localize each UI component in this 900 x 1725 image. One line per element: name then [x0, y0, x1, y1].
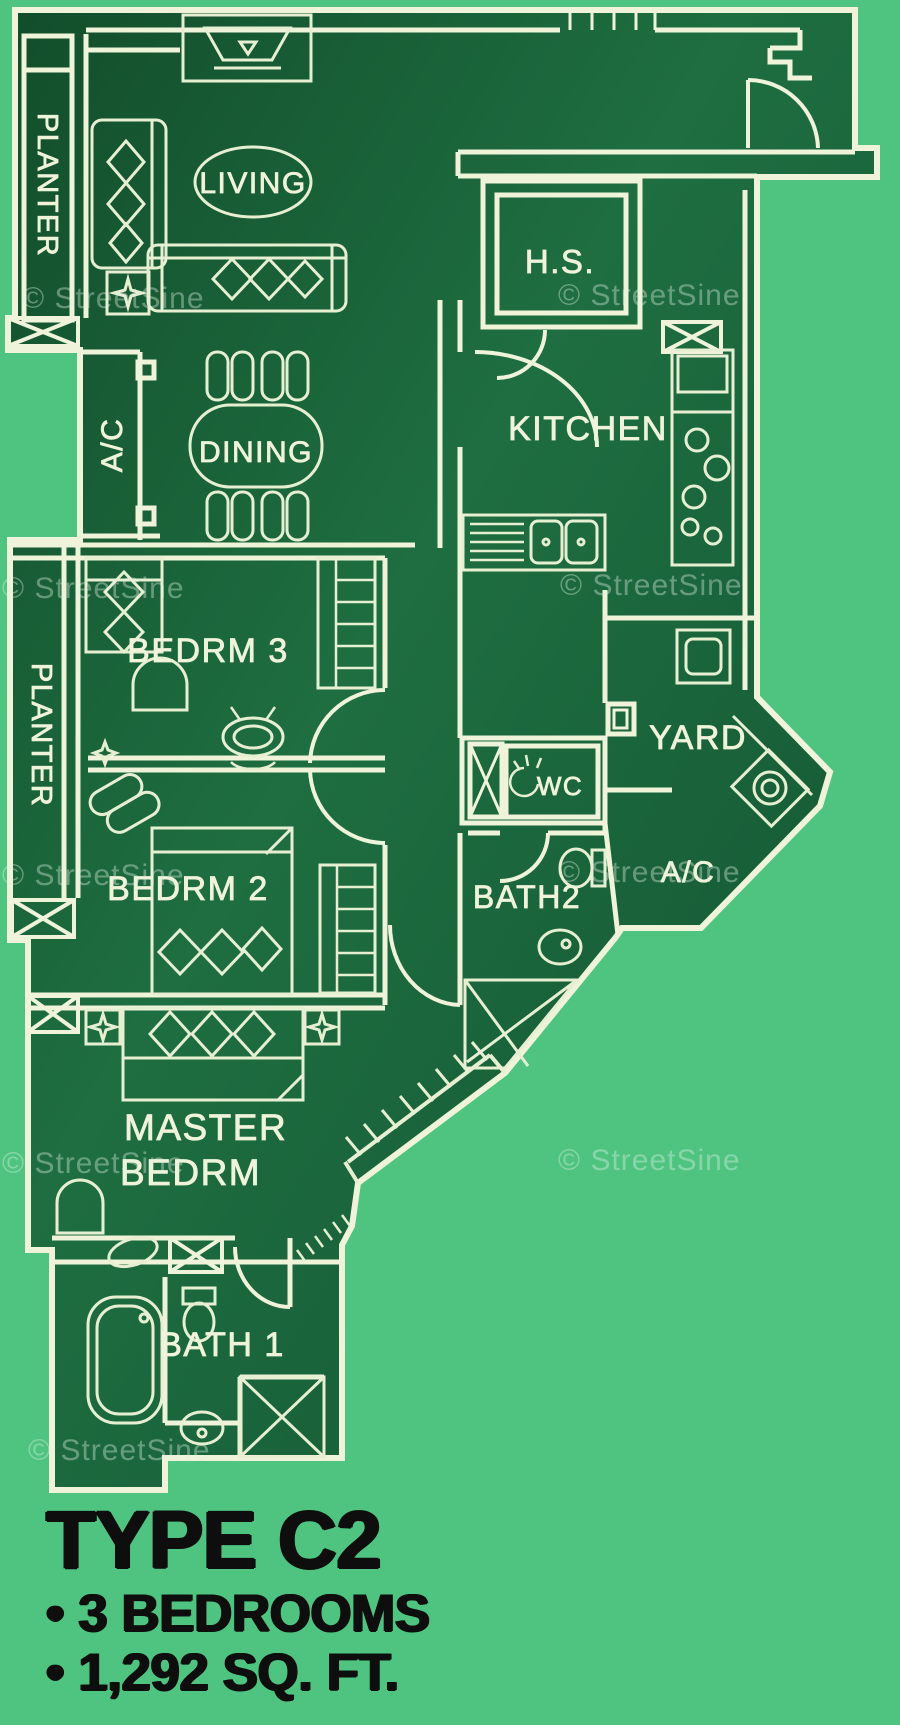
watermark: © StreetSine	[560, 569, 743, 602]
watermark: © StreetSine	[22, 282, 205, 315]
watermark: © StreetSine	[558, 856, 741, 889]
room-label-master-line1: MASTER	[124, 1107, 287, 1148]
watermark: © StreetSine	[28, 1434, 211, 1467]
floorplan-page: PLANTER LIVING H.S. KITCHEN A/C DINING B…	[0, 0, 900, 1725]
room-label-wc: WC	[537, 771, 583, 801]
room-label-hs: H.S.	[525, 243, 595, 280]
room-label-yard: YARD	[649, 719, 747, 757]
room-label-planter-left: PLANTER	[25, 663, 57, 807]
area-bullet: • 1,292 SQ. FT.	[46, 1643, 430, 1702]
room-label-bath1: BATH 1	[159, 1326, 285, 1364]
room-label-planter-top: PLANTER	[31, 113, 63, 257]
room-label-bedrm3: BEDRM 3	[127, 632, 289, 670]
bedrooms-bullet: • 3 BEDROOMS	[46, 1584, 430, 1643]
watermark: © StreetSine	[2, 572, 185, 605]
unit-type-title: TYPE C2	[46, 1498, 430, 1584]
room-label-ac-left: A/C	[96, 418, 129, 473]
room-label-living: LIVING	[199, 167, 306, 200]
watermark: © StreetSine	[2, 1147, 185, 1180]
plan-caption: TYPE C2 • 3 BEDROOMS • 1,292 SQ. FT.	[46, 1498, 430, 1703]
floor-plan: PLANTER LIVING H.S. KITCHEN A/C DINING B…	[0, 0, 900, 1725]
watermark: © StreetSine	[2, 859, 185, 892]
room-label-kitchen: KITCHEN	[508, 410, 668, 448]
room-label-dining: DINING	[199, 436, 313, 469]
watermark: © StreetSine	[558, 279, 741, 312]
watermark: © StreetSine	[558, 1144, 741, 1177]
